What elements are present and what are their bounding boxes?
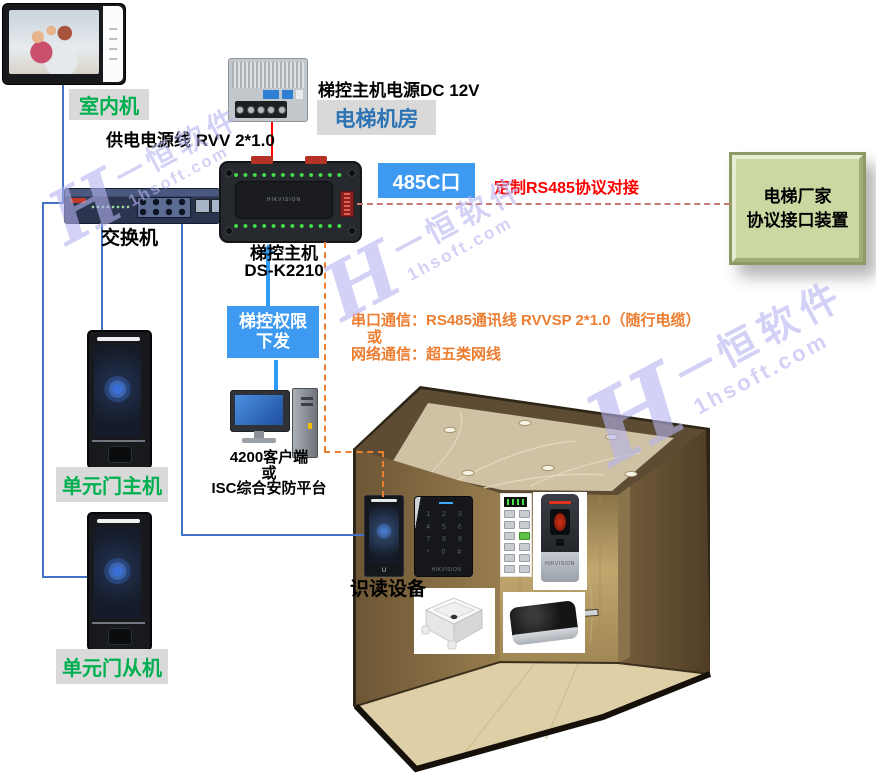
flat-reader-image [503,592,585,653]
line-switch-to-face-h [181,534,367,536]
computer-tower [292,388,318,458]
fingerprint-reader-image: HIKVISION [533,492,587,590]
elevator-access-diagram: 室内机 梯控主机电源DC 12V 电梯机房 供电电源线 RVV 2*1.0 交换… [0,0,876,774]
door-slave-image [87,512,152,651]
line-switch-to-doorslave-v [42,202,44,578]
controller-leds-top [233,172,345,178]
permission-box: 梯控权限 下发 [227,306,319,358]
door-master-image [87,330,152,469]
controller-panel: HIKVISION [235,181,333,219]
line-switch-to-face-v [181,220,183,536]
face-terminal-image: U [364,495,404,577]
switch-brand-tag [70,198,86,203]
door-master-label: 单元门主机 [56,467,168,502]
line-indoor-to-switch [62,85,64,203]
controller-brand: HIKVISION [267,197,301,203]
card-tray-image [414,588,495,654]
power-supply-image [228,58,308,122]
power-cable-label: 供电电源线 RVV 2*1.0 [106,126,275,151]
indoor-monitor-screen [9,10,99,74]
comm-dashed-h [324,451,384,453]
client-label: 4200客户端 或 ISC综合安防平台 [204,450,334,497]
machine-room-label: 电梯机房 [317,100,436,135]
switch-ports [137,197,191,218]
controller-label: 梯控主机 DS-K2210 [223,245,345,279]
fingerprint-brand: HIKVISION [545,561,575,567]
switch-leds [91,205,131,210]
card-tray-graphic [414,588,495,654]
rs485-protocol-note: 定制RS485协议对接 [494,174,639,198]
controller-terminal-block [251,156,273,164]
comm-note: 串口通信：RS485通讯线 RVVSP 2*1.0（随行电缆） 或 网络通信：超… [351,312,701,363]
controller-leds-bottom [233,223,345,229]
comm-dashed-v2 [382,451,384,497]
indoor-monitor-buttons [103,6,123,82]
psu-terminals [235,101,287,118]
indoor-monitor-image [2,3,126,85]
keypad-led [439,502,453,504]
pin-keypad-display [504,497,527,507]
psu-vents [232,62,304,88]
line-switch-to-doorslave-h [42,576,89,578]
pin-keypad-buttons [504,510,528,572]
readers-label: 识读设备 [350,574,426,601]
psu-caption: 梯控主机电源DC 12V [318,76,480,101]
computer-monitor [230,390,290,432]
switch-label: 交换机 [101,223,158,250]
controller-terminal-block [305,156,327,164]
indoor-monitor-label: 室内机 [69,89,149,120]
controller-image: HIKVISION [219,161,362,243]
keypad-reader-image: 1 2 34 5 6 7 8 9* 0 # HIKVISION [414,496,473,577]
keypad-digits: 1 2 34 5 6 7 8 9* 0 # [423,509,470,559]
comm-dashed-v1 [324,242,326,452]
switch-uplink-port [195,199,210,213]
keypad-brand: HIKVISION [421,567,472,573]
controller-dip-switch [340,191,354,217]
door-master-fingerprint-module [108,446,132,463]
door-slave-label: 单元门从机 [56,649,168,684]
pin-keypad-image [500,493,532,577]
network-switch-image [64,188,220,224]
vendor-protocol-box: 电梯厂家 协议接口装置 [729,152,866,265]
client-to-permission-line [274,360,278,390]
door-slave-fingerprint-module [108,628,132,645]
rs485-dashed-line [357,203,730,205]
port-485-badge: 485C口 [378,163,475,198]
